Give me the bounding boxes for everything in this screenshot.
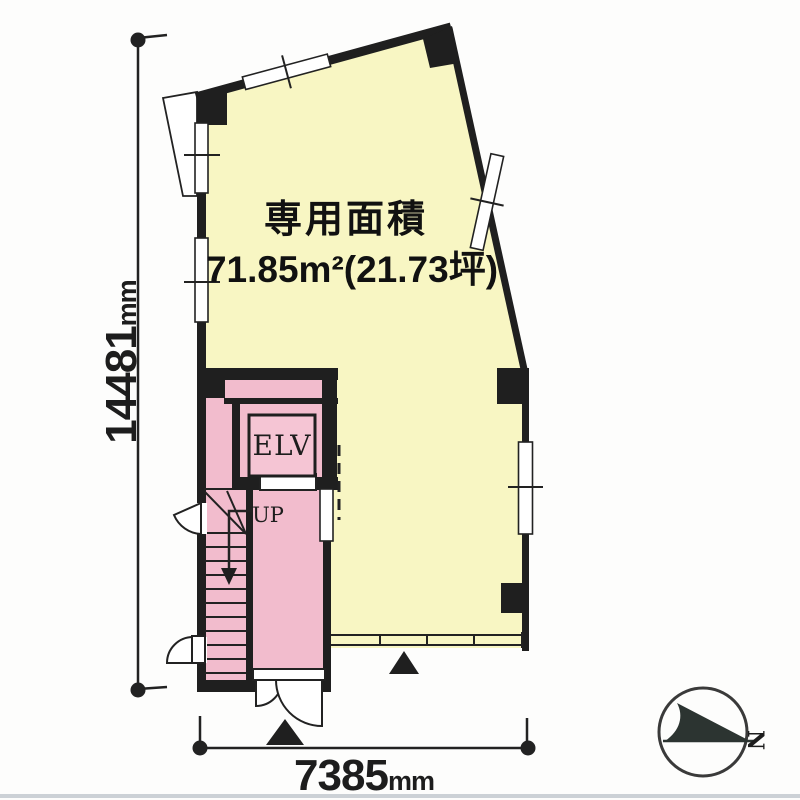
entrance-triangle-icon <box>266 719 304 745</box>
floor-plan-page: ELV UP 専用面 <box>0 0 800 800</box>
door-swing <box>167 637 193 663</box>
elv-shaft-inner-wall <box>224 398 338 404</box>
entrance-sill <box>253 669 325 680</box>
elv-left-wall <box>232 398 240 478</box>
width-value: 7385 <box>294 751 388 800</box>
height-dimension: 14481mm <box>97 33 167 698</box>
page-edge-line <box>0 794 800 798</box>
compass-north-label: N <box>742 730 768 750</box>
area-title: 専用面積 <box>264 199 428 241</box>
dimension-endpoint <box>131 33 146 48</box>
entrance-double-door <box>253 669 325 726</box>
side-door-upper <box>174 503 207 534</box>
dimension-endpoint <box>131 683 146 698</box>
floor-plan-drawing: ELV UP 専用面 <box>0 0 800 800</box>
height-unit: mm <box>112 280 142 326</box>
width-dimension-label: 7385mm <box>294 751 434 800</box>
elevator-label: ELV <box>253 429 312 462</box>
elv-right-wall <box>322 368 337 490</box>
column-top-left <box>197 92 227 125</box>
entrance-right-leaf <box>276 680 322 726</box>
side-door-lower <box>167 636 207 663</box>
height-value: 14481 <box>97 326 146 444</box>
width-unit: mm <box>388 766 434 796</box>
dimension-endpoint <box>193 741 208 756</box>
core-top-left-column <box>197 368 225 398</box>
column-mid-right <box>497 368 527 404</box>
area-value: 71.85m²(21.73坪) <box>206 249 498 290</box>
stairs-up-label: UP <box>252 503 284 527</box>
height-dimension-label: 14481mm <box>97 280 146 443</box>
window-glass <box>195 123 208 193</box>
compass-needle <box>665 703 750 741</box>
door-leaf <box>192 636 205 663</box>
entrance-triangle-icon <box>389 651 419 674</box>
dimension-endpoint <box>521 741 536 756</box>
exterior-sliver <box>163 92 197 196</box>
hall-window <box>320 489 333 541</box>
column-lower-right <box>501 583 527 613</box>
door-swing <box>174 503 201 534</box>
width-dimension: 7385mm <box>193 716 536 800</box>
north-compass-icon: N <box>659 688 768 776</box>
elevator: ELV <box>249 415 315 476</box>
